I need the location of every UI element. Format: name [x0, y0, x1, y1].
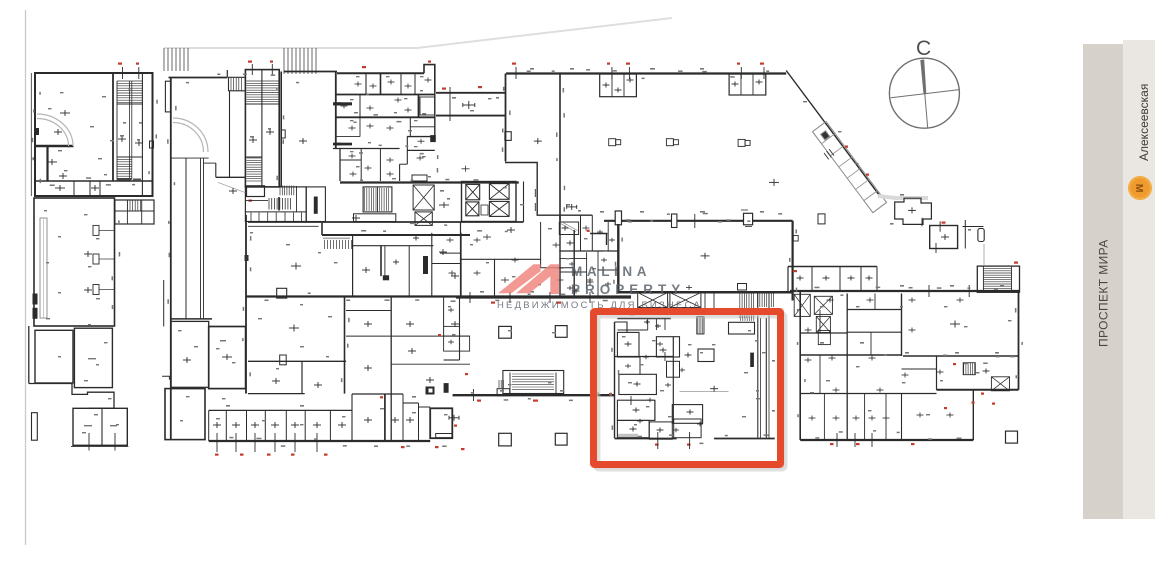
- svg-text:MALINA: MALINA: [571, 264, 651, 279]
- svg-text:ПРОСПЕКТ МИРА: ПРОСПЕКТ МИРА: [1097, 239, 1111, 347]
- svg-text:Алексеевская: Алексеевская: [1137, 84, 1151, 161]
- svg-text:М: М: [1133, 184, 1145, 193]
- svg-text:PROPERTY: PROPERTY: [571, 282, 685, 297]
- svg-text:С: С: [916, 37, 931, 60]
